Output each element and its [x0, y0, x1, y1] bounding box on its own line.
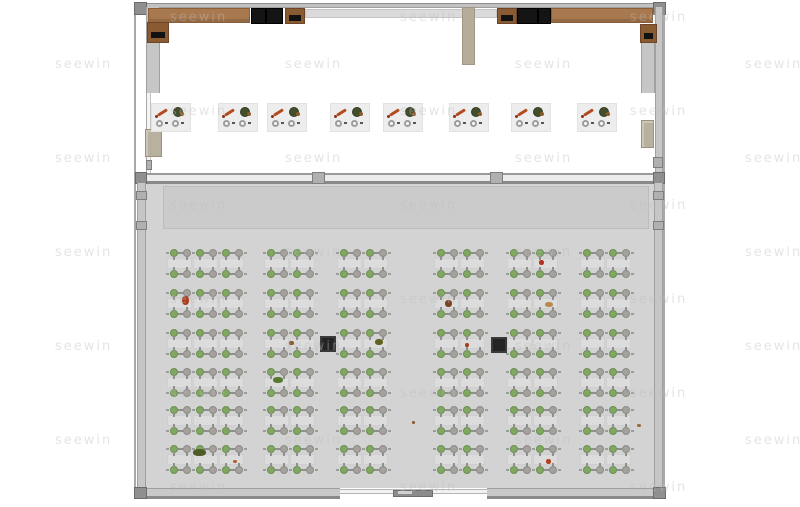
watermark-text: seewin: [285, 433, 342, 448]
watermark-text: seewin: [630, 10, 687, 25]
watermark-layer: seewinseewinseewinseewinseewinseewinseew…: [0, 0, 800, 507]
watermark-text: seewin: [170, 104, 227, 119]
watermark-text: seewin: [400, 104, 457, 119]
watermark-text: seewin: [745, 433, 800, 448]
watermark-text: seewin: [745, 339, 800, 354]
watermark-text: seewin: [400, 292, 457, 307]
watermark-text: seewin: [170, 292, 227, 307]
watermark-text: seewin: [400, 386, 457, 401]
watermark-text: seewin: [515, 151, 572, 166]
watermark-text: seewin: [630, 386, 687, 401]
watermark-text: seewin: [400, 198, 457, 213]
watermark-text: seewin: [400, 10, 457, 25]
watermark-text: seewin: [285, 151, 342, 166]
watermark-text: seewin: [745, 57, 800, 72]
watermark-text: seewin: [630, 292, 687, 307]
watermark-text: seewin: [55, 151, 112, 166]
watermark-text: seewin: [170, 386, 227, 401]
watermark-text: seewin: [630, 198, 687, 213]
watermark-text: seewin: [630, 104, 687, 119]
watermark-text: seewin: [55, 57, 112, 72]
watermark-text: seewin: [285, 245, 342, 260]
watermark-text: seewin: [55, 245, 112, 260]
watermark-text: seewin: [170, 480, 227, 495]
watermark-text: seewin: [515, 433, 572, 448]
watermark-text: seewin: [170, 10, 227, 25]
watermark-text: seewin: [400, 480, 457, 495]
watermark-text: seewin: [170, 198, 227, 213]
watermark-text: seewin: [745, 245, 800, 260]
watermark-text: seewin: [55, 433, 112, 448]
watermark-text: seewin: [515, 245, 572, 260]
watermark-text: seewin: [55, 339, 112, 354]
watermark-text: seewin: [285, 57, 342, 72]
watermark-text: seewin: [285, 339, 342, 354]
floorplan-canvas: seewinseewinseewinseewinseewinseewinseew…: [0, 0, 800, 507]
watermark-text: seewin: [745, 151, 800, 166]
watermark-text: seewin: [515, 57, 572, 72]
watermark-text: seewin: [515, 339, 572, 354]
watermark-text: seewin: [630, 480, 687, 495]
